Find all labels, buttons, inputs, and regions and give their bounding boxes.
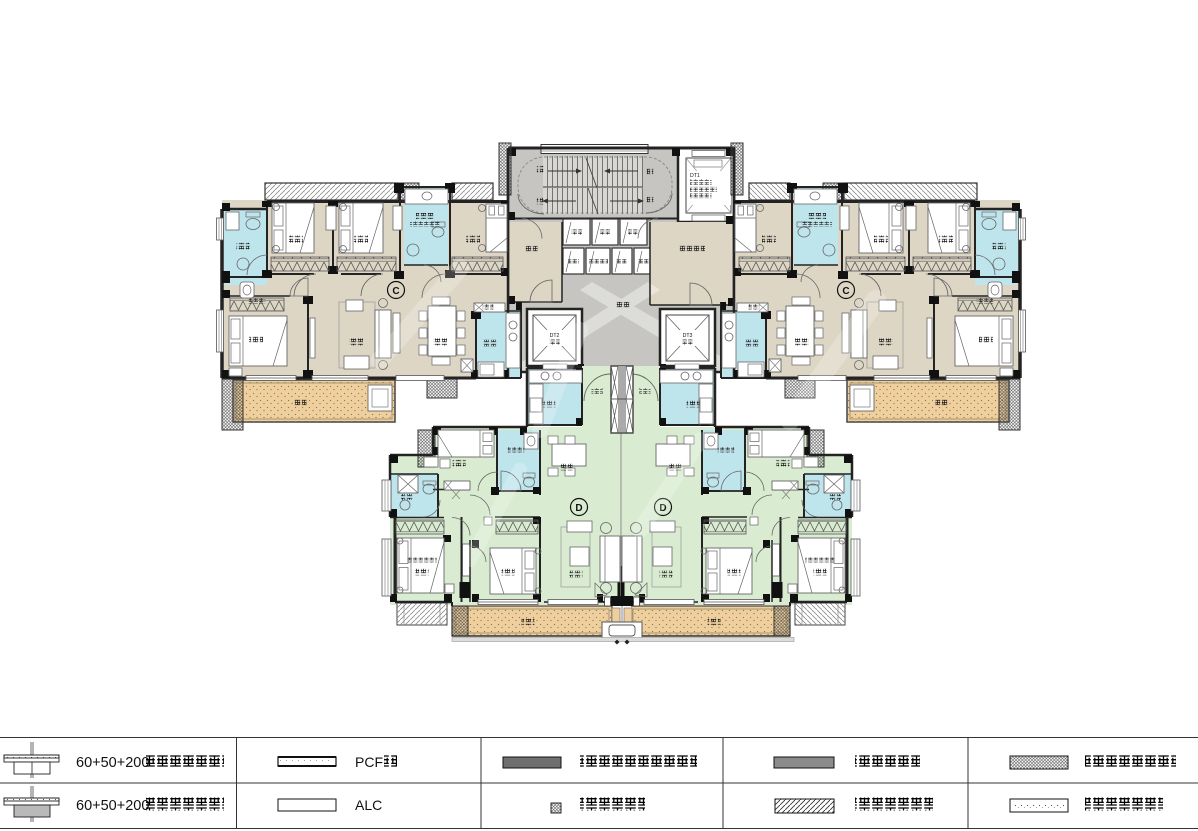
svg-text:DT3: DT3 [683,333,693,339]
svg-text:PCF: PCF [355,754,383,770]
svg-text:D: D [575,503,582,514]
svg-text:C: C [392,286,399,297]
svg-text:DT2: DT2 [550,333,560,339]
svg-text:ALC: ALC [355,797,382,813]
svg-text:60+50+200: 60+50+200 [76,798,149,814]
svg-text:60+50+200: 60+50+200 [76,755,149,771]
svg-text:C: C [842,286,849,297]
svg-text:DT1: DT1 [690,173,700,179]
